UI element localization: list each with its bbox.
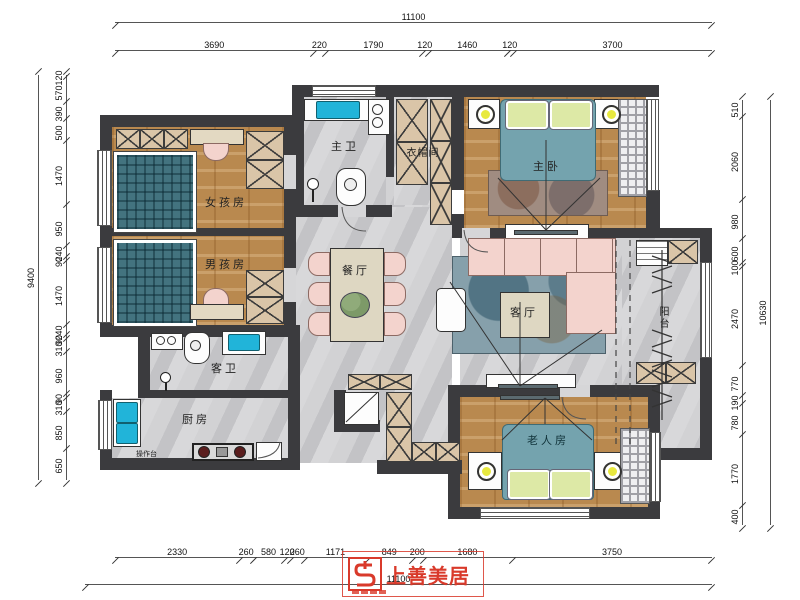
fixture-icon	[372, 117, 383, 128]
sink	[228, 334, 260, 351]
bed-boys	[114, 240, 196, 326]
lamp	[603, 462, 622, 481]
wardrobe	[246, 270, 284, 324]
shower-icon-stem	[312, 190, 314, 202]
dim-segment: 960	[52, 355, 66, 397]
toilet-lid	[344, 178, 357, 191]
dim-segment: 650	[52, 452, 66, 480]
sink	[116, 402, 138, 423]
door-opening	[462, 228, 490, 238]
balcony-cabinet	[668, 240, 698, 264]
sink	[316, 101, 360, 119]
fixture-icon	[156, 336, 165, 345]
pillow	[550, 470, 592, 499]
dim-segment: 780	[728, 407, 742, 438]
wall	[138, 390, 300, 398]
room-label-cloakroom: 衣帽间	[392, 144, 454, 159]
dining-chair	[308, 312, 330, 336]
tv	[498, 384, 558, 389]
brand-name: 上善美居	[386, 560, 470, 589]
fixture-icon	[167, 336, 176, 345]
dim-segment: 1470	[52, 264, 66, 328]
wall	[648, 385, 660, 433]
dining-chair	[308, 282, 330, 306]
hall-cabinet	[412, 442, 460, 462]
wall	[288, 325, 300, 465]
dim-segment: 3690	[115, 36, 313, 50]
room-label-living: 客厅	[500, 304, 548, 320]
dim-segment: 2330	[115, 543, 239, 557]
fixture-icon	[372, 104, 383, 115]
wardrobe	[430, 99, 452, 225]
burner	[198, 446, 210, 458]
bay-window-seat	[620, 428, 650, 504]
room-label-master-bath: 主卫	[310, 138, 380, 154]
dim-segment: 850	[52, 415, 66, 452]
dim-left-segments: 1205703905001470950240901470240903109609…	[52, 75, 67, 480]
lamp	[476, 105, 495, 124]
dim-segment: 260	[290, 543, 304, 557]
room-label-balcony: 阳台	[655, 296, 670, 340]
washing-machine	[636, 240, 668, 266]
dim-segment: 11100	[115, 8, 712, 22]
dim-segment: 1790	[325, 36, 421, 50]
pillow	[506, 101, 548, 129]
room-label-dining: 餐厅	[332, 262, 380, 278]
bay-window-seat	[618, 99, 647, 197]
shower-icon-stem	[165, 382, 167, 391]
dim-segment: 10630	[756, 100, 770, 525]
dim-segment: 9400	[24, 75, 38, 480]
room-label-elderly: 老人房	[508, 432, 588, 448]
room-label-boys: 男孩房	[196, 256, 256, 272]
sofa-chaise	[566, 272, 616, 334]
bed-girls	[114, 152, 196, 232]
window	[480, 507, 590, 519]
dim-segment: 2470	[728, 270, 742, 369]
dining-chair	[308, 252, 330, 276]
dining-chair	[384, 252, 406, 276]
pillow	[508, 470, 550, 499]
dim-segment: 400	[728, 509, 742, 525]
centerpiece-plant	[340, 292, 370, 318]
wall	[100, 115, 296, 127]
door-opening	[284, 268, 296, 302]
desk	[190, 304, 244, 320]
worktop-label: 操作台	[136, 449, 157, 459]
burner	[234, 446, 246, 458]
window	[646, 99, 659, 191]
dim-segment: 950	[52, 208, 66, 249]
dim-segment: 1770	[728, 438, 742, 509]
dim-segment: 570	[52, 80, 66, 105]
brand-stamp: 上善美居	[342, 551, 484, 597]
hall-cabinet	[386, 392, 412, 462]
window	[97, 247, 112, 323]
window	[650, 432, 661, 502]
window	[97, 150, 112, 226]
dim-segment: 3700	[513, 36, 712, 50]
shower-icon	[307, 178, 319, 190]
dim-segment: 3750	[512, 543, 712, 557]
door-opening	[338, 205, 366, 217]
wardrobe	[396, 99, 428, 185]
dim-segment: 2060	[728, 120, 742, 202]
sofa	[468, 238, 616, 276]
wall	[292, 85, 304, 217]
dim-right-segments: 510206098060010024707701907801770400	[728, 100, 743, 525]
room-label-kitchen: 厨房	[168, 411, 224, 427]
sink	[116, 423, 138, 444]
lamp	[602, 105, 621, 124]
lamp	[477, 462, 496, 481]
floor-plan-canvas: 11100 3690220179012014601203700 9400 120…	[0, 0, 800, 600]
brand-subtext-marks	[352, 590, 386, 594]
door-leaf	[256, 442, 282, 461]
door-opening	[284, 155, 296, 189]
dim-top-segments: 3690220179012014601203700	[115, 36, 712, 51]
wall	[138, 337, 150, 395]
window	[312, 85, 376, 97]
room-label-girls: 女孩房	[196, 194, 256, 210]
stove-center	[216, 447, 228, 457]
dim-left-total: 9400	[24, 75, 39, 480]
wardrobe	[246, 131, 284, 189]
dim-segment: 980	[728, 203, 742, 242]
tv	[500, 395, 560, 400]
dining-chair	[384, 312, 406, 336]
window	[700, 262, 712, 358]
room-label-guest-bath: 客卫	[196, 360, 254, 376]
dim-segment: 1470	[52, 144, 66, 208]
window	[98, 400, 112, 450]
brand-logo-icon	[348, 557, 382, 591]
wall	[377, 460, 462, 474]
pillow	[550, 101, 592, 129]
dim-segment: 1460	[428, 36, 507, 50]
dim-right-total: 10630	[756, 100, 771, 525]
balcony-cabinet	[636, 362, 696, 384]
wall	[452, 85, 464, 190]
armchair	[436, 288, 466, 332]
dim-segment: 260	[239, 543, 253, 557]
room-label-master-bedroom: 主卧	[515, 158, 579, 174]
entry-door-leaf	[344, 392, 379, 425]
dim-top-total: 11100	[115, 8, 712, 23]
tv	[514, 230, 578, 235]
dim-segment: 220	[313, 36, 325, 50]
cabinet-row	[116, 129, 188, 149]
shoe-cabinet	[348, 374, 412, 390]
dining-chair	[384, 282, 406, 306]
toilet-lid	[190, 340, 201, 351]
